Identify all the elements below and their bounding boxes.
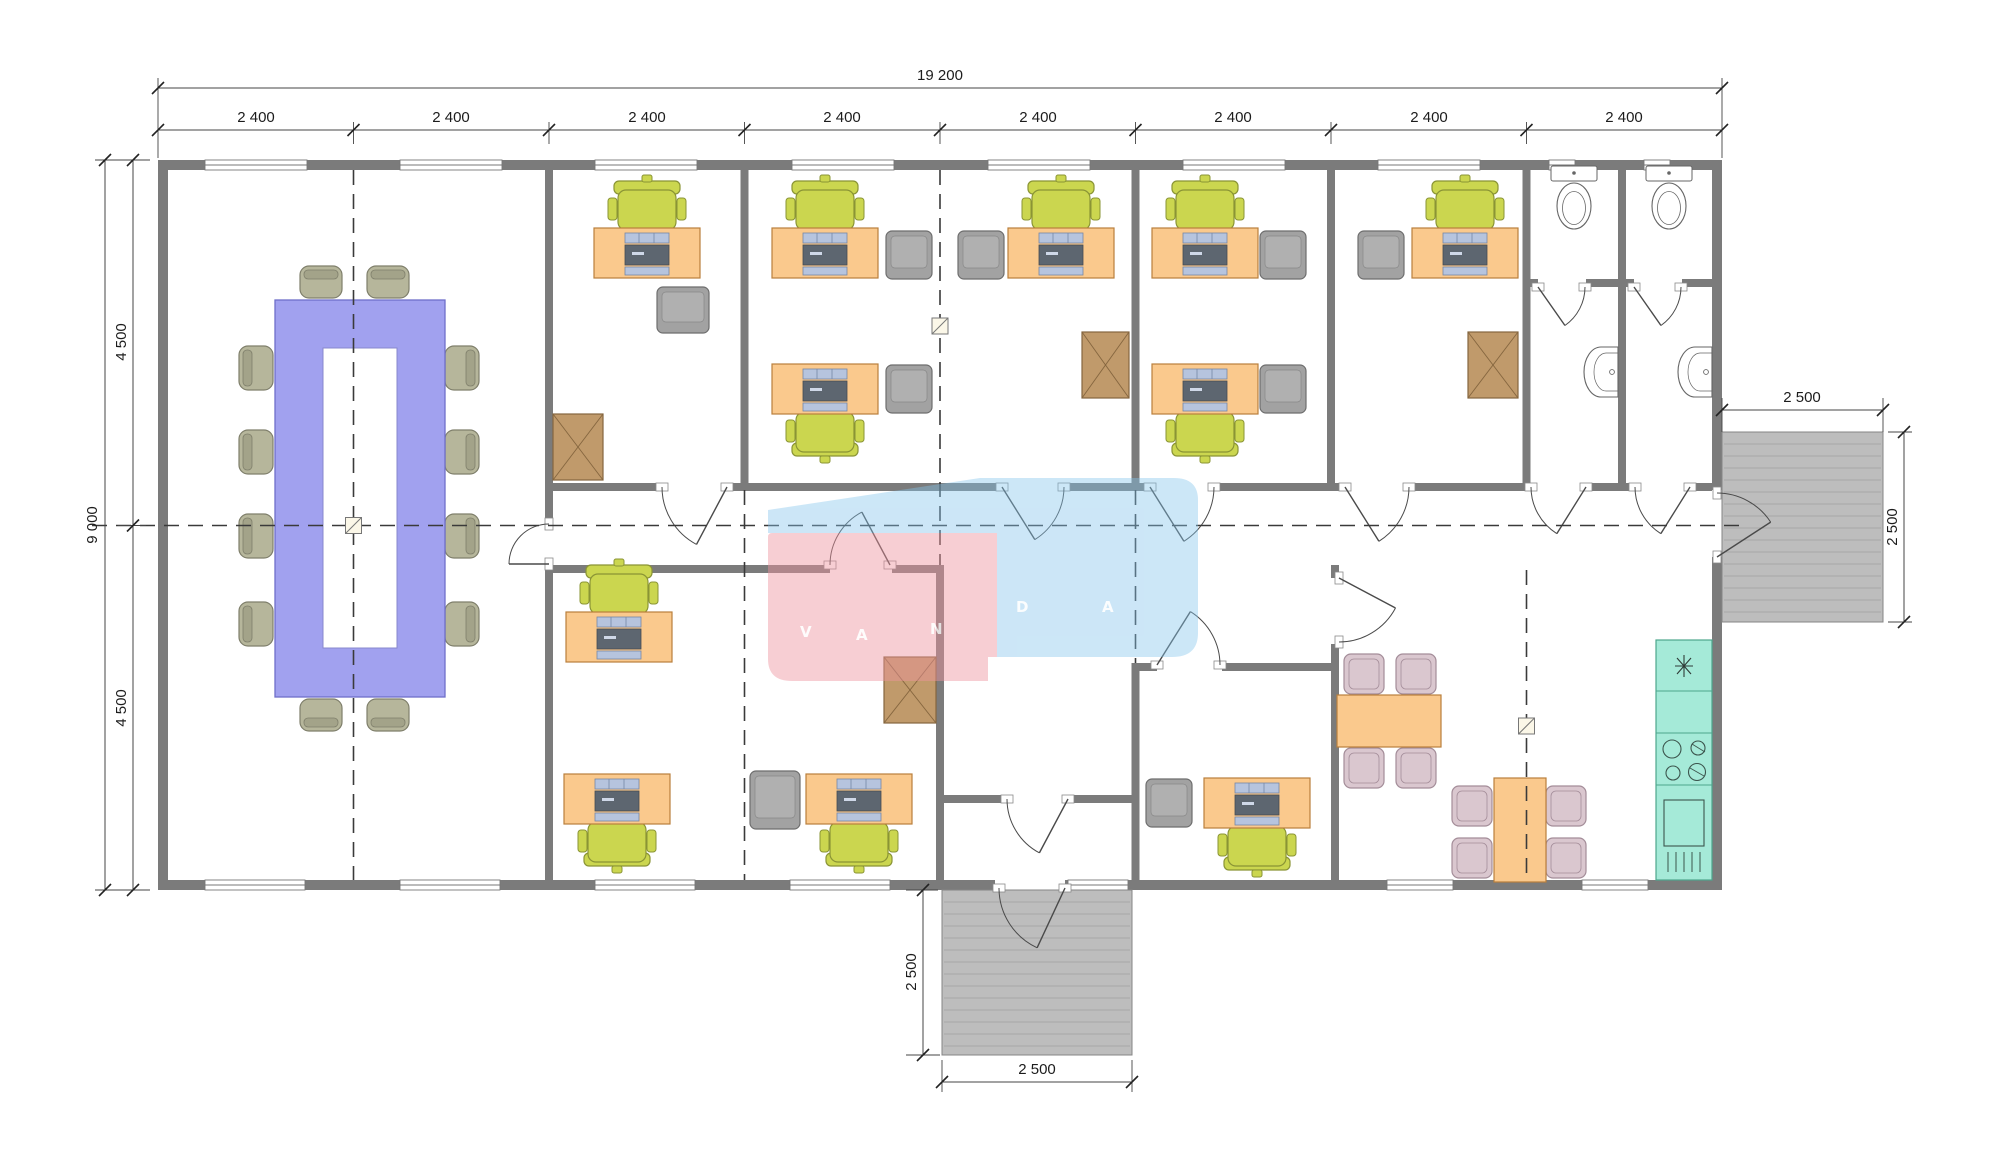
- task-chair-armrest: [1218, 834, 1227, 856]
- door-opening: [1712, 490, 1722, 557]
- conference-chair-back: [371, 718, 405, 727]
- guest-chair-seat: [963, 236, 999, 268]
- dim-left-upper: 4 500: [113, 323, 130, 361]
- computer-keyboard: [1183, 233, 1227, 243]
- wall-segment: [1132, 170, 1140, 483]
- guest-chair-seat: [891, 370, 927, 402]
- door: [1335, 572, 1396, 648]
- task-chair-headrest: [1460, 175, 1470, 182]
- door-swing-arc: [1661, 287, 1681, 326]
- door-leaf: [1538, 287, 1565, 326]
- wall-segment: [741, 170, 749, 483]
- conference-chair-back: [466, 434, 475, 470]
- task-chair-armrest: [580, 582, 589, 604]
- watermark-letter: V: [800, 623, 812, 641]
- dining-chair: [1396, 748, 1436, 788]
- computer-keyboard: [1443, 233, 1487, 243]
- computer-keyboard: [1039, 233, 1083, 243]
- conference-chair-back: [243, 606, 252, 642]
- dim-right-porch-depth: 2 500: [1884, 508, 1901, 546]
- wall-segment: [158, 160, 1722, 170]
- conference-chair-back: [371, 270, 405, 279]
- task-chair-armrest: [608, 198, 617, 220]
- computer-monitor-glare: [810, 252, 822, 255]
- computer-monitor-glare: [1190, 252, 1202, 255]
- task-chair: [1228, 826, 1286, 866]
- task-chair-headrest: [854, 866, 864, 873]
- door-leaf: [1345, 487, 1379, 541]
- task-chair-headrest: [1200, 175, 1210, 182]
- guest-chair: [750, 771, 800, 829]
- guest-chair: [1260, 365, 1306, 413]
- task-chair-armrest: [1235, 420, 1244, 442]
- wall-segment: [1132, 663, 1140, 880]
- computer-keyboard: [1235, 783, 1279, 793]
- wall-segment: [944, 795, 1005, 803]
- task-chair-headrest: [612, 866, 622, 873]
- watermark-letter: N: [930, 620, 943, 638]
- wall-segment: [549, 483, 660, 491]
- computer-monitor: [1039, 245, 1083, 265]
- computer-base: [1183, 267, 1227, 275]
- conference-chair-back: [243, 518, 252, 554]
- computer-monitor: [1235, 795, 1279, 815]
- dining-chair: [1396, 654, 1436, 694]
- computer-monitor-glare: [844, 798, 856, 801]
- dining-chair: [1546, 786, 1586, 826]
- task-chair-armrest: [677, 198, 686, 220]
- computer-keyboard: [625, 233, 669, 243]
- guest-chair: [886, 365, 932, 413]
- wall-segment: [158, 880, 1722, 890]
- dim-bay-6: 2 400: [1214, 109, 1252, 126]
- grid-intersection-marker: [346, 518, 362, 534]
- dining-chair: [1452, 786, 1492, 826]
- task-chair-headrest: [1252, 870, 1262, 877]
- computer-monitor: [803, 381, 847, 401]
- wall-segment: [1409, 483, 1530, 491]
- guest-chair: [1358, 231, 1404, 279]
- watermark-letter: A: [1102, 598, 1114, 616]
- task-chair-armrest: [1495, 198, 1504, 220]
- computer-keyboard: [597, 617, 641, 627]
- task-chair: [1176, 412, 1234, 452]
- dim-bay-1: 2 400: [237, 109, 275, 126]
- task-chair-headrest: [614, 559, 624, 566]
- dim-bay-8: 2 400: [1605, 109, 1643, 126]
- computer-base: [837, 813, 881, 821]
- computer-keyboard: [1183, 369, 1227, 379]
- computer-monitor: [1443, 245, 1487, 265]
- computer-base: [597, 651, 641, 659]
- task-chair: [1436, 190, 1494, 230]
- task-chair: [1176, 190, 1234, 230]
- computer-keyboard: [595, 779, 639, 789]
- computer-base: [803, 403, 847, 411]
- door-leaf: [1339, 578, 1396, 608]
- computer-monitor: [837, 791, 881, 811]
- door-swing-arc: [509, 524, 549, 564]
- door: [1001, 795, 1074, 853]
- wall-segment: [1327, 170, 1335, 483]
- task-chair-armrest: [1235, 198, 1244, 220]
- computer-monitor-glare: [1046, 252, 1058, 255]
- conference-chair-back: [466, 518, 475, 554]
- door-swing-arc: [1007, 799, 1039, 853]
- task-chair: [830, 822, 888, 862]
- task-chair-armrest: [1091, 198, 1100, 220]
- wall-segment: [1618, 170, 1626, 483]
- task-chair-headrest: [820, 456, 830, 463]
- office-desk: [566, 559, 672, 662]
- floor-plan-drawing: 19 200 2 400 2 400 2 400 2 400 2 400 2 4…: [0, 0, 2000, 1160]
- conference-chair-back: [466, 350, 475, 386]
- task-chair: [588, 822, 646, 862]
- computer-base: [595, 813, 639, 821]
- dim-bay-2: 2 400: [432, 109, 470, 126]
- task-chair-headrest: [1200, 456, 1210, 463]
- task-chair: [1032, 190, 1090, 230]
- watermark-pink-shape: [768, 533, 997, 681]
- dining-chair: [1344, 748, 1384, 788]
- deck: [942, 890, 1132, 1055]
- task-chair-armrest: [855, 198, 864, 220]
- conference-set: [239, 266, 479, 731]
- guest-chair: [1146, 779, 1192, 827]
- break-room-set: [1337, 654, 1586, 882]
- wall-segment: [1331, 644, 1339, 880]
- dining-chair: [1452, 838, 1492, 878]
- dining-table: [1337, 695, 1441, 747]
- toilet-flush-dot: [1572, 171, 1576, 175]
- office-desk: [1412, 175, 1518, 278]
- conference-chair-back: [304, 270, 338, 279]
- dim-bottom-porch-depth: 2 500: [903, 953, 920, 991]
- grid-intersection-marker: [1519, 718, 1535, 734]
- task-chair-armrest: [855, 420, 864, 442]
- wall-segment: [1222, 663, 1335, 671]
- conference-chair-back: [243, 434, 252, 470]
- door-swing-arc: [1339, 608, 1396, 642]
- door-leaf: [696, 487, 727, 544]
- computer-monitor-glare: [602, 798, 614, 801]
- office-desk: [564, 774, 670, 873]
- guest-chair-seat: [891, 236, 927, 268]
- door-leaf: [1039, 799, 1068, 853]
- task-chair-headrest: [642, 175, 652, 182]
- office-desk: [772, 364, 878, 463]
- storage-cabinet: [1082, 332, 1129, 398]
- dim-total-width: 19 200: [917, 67, 963, 84]
- dim-total-height: 9 000: [84, 506, 101, 544]
- door-swing-arc: [1531, 487, 1557, 534]
- watermark-letter: D: [1016, 598, 1028, 616]
- task-chair-armrest: [786, 198, 795, 220]
- guest-chair: [958, 231, 1004, 279]
- task-chair-armrest: [1166, 198, 1175, 220]
- conference-table-hole: [323, 348, 397, 648]
- wall-segment: [545, 170, 553, 528]
- task-chair: [590, 574, 648, 614]
- task-chair-armrest: [786, 420, 795, 442]
- door-leaf: [1557, 487, 1586, 534]
- door-opening: [995, 880, 1065, 890]
- door-swing-arc: [1635, 487, 1661, 534]
- guest-chair-seat: [1363, 236, 1399, 268]
- dim-left-lower: 4 500: [113, 689, 130, 727]
- task-chair: [796, 412, 854, 452]
- door-leaf: [1661, 487, 1690, 534]
- guest-chair-seat: [662, 292, 704, 322]
- computer-monitor: [595, 791, 639, 811]
- task-chair-armrest: [1426, 198, 1435, 220]
- wall-segment: [545, 566, 553, 880]
- office-desk: [1152, 364, 1258, 463]
- task-chair: [618, 190, 676, 230]
- computer-base: [1235, 817, 1279, 825]
- task-chair-headrest: [1056, 175, 1066, 182]
- dim-right-porch-width: 2 500: [1783, 389, 1821, 406]
- conference-chair-back: [304, 718, 338, 727]
- guest-chair-seat: [1265, 370, 1301, 402]
- task-chair-armrest: [1287, 834, 1296, 856]
- watermark-letter: A: [856, 626, 868, 644]
- wall-segment: [1216, 483, 1345, 491]
- conference-chair-back: [466, 606, 475, 642]
- computer-monitor: [803, 245, 847, 265]
- task-chair-armrest: [1022, 198, 1031, 220]
- computer-keyboard: [803, 233, 847, 243]
- dim-bay-4: 2 400: [823, 109, 861, 126]
- dim-bay-3: 2 400: [628, 109, 666, 126]
- computer-base: [1039, 267, 1083, 275]
- wall-segment: [1586, 483, 1634, 491]
- deck: [1722, 432, 1883, 622]
- computer-keyboard: [803, 369, 847, 379]
- dining-table: [1494, 778, 1546, 882]
- computer-monitor-glare: [604, 636, 616, 639]
- task-chair-armrest: [1166, 420, 1175, 442]
- toilet-bowl: [1557, 183, 1591, 229]
- door: [1628, 283, 1687, 326]
- computer-monitor: [625, 245, 669, 265]
- wall-segment: [1523, 170, 1531, 483]
- dining-chair: [1344, 654, 1384, 694]
- office-desk: [594, 175, 700, 278]
- office-desk: [1152, 175, 1258, 278]
- office-desk: [806, 774, 912, 873]
- guest-chair: [886, 231, 932, 279]
- floor-plan: 19 200 2 400 2 400 2 400 2 400 2 400 2 4…: [0, 0, 2000, 1160]
- conference-chair-back: [243, 350, 252, 386]
- dim-bottom-porch-width: 2 500: [1018, 1061, 1056, 1078]
- task-chair-armrest: [889, 830, 898, 852]
- office-desk: [1008, 175, 1114, 278]
- door-swing-arc: [1565, 287, 1585, 326]
- guest-chair-seat: [755, 776, 795, 818]
- door-swing-arc: [662, 487, 696, 544]
- door: [1532, 283, 1591, 326]
- task-chair-armrest: [649, 582, 658, 604]
- vanda-watermark: V A N D A: [768, 478, 1198, 681]
- door-leaf: [1634, 287, 1661, 326]
- computer-monitor-glare: [1450, 252, 1462, 255]
- dim-bay-7: 2 400: [1410, 109, 1448, 126]
- task-chair-armrest: [578, 830, 587, 852]
- toilet-flush-dot: [1667, 171, 1671, 175]
- storage-cabinet: [1468, 332, 1518, 398]
- computer-monitor: [597, 629, 641, 649]
- computer-base: [803, 267, 847, 275]
- computer-keyboard: [837, 779, 881, 789]
- guest-chair: [1260, 231, 1306, 279]
- task-chair-armrest: [647, 830, 656, 852]
- computer-base: [1183, 403, 1227, 411]
- office-desk: [1204, 778, 1310, 877]
- guest-chair-seat: [1265, 236, 1301, 268]
- wall-segment: [1068, 795, 1132, 803]
- dim-bay-5: 2 400: [1019, 109, 1057, 126]
- computer-base: [625, 267, 669, 275]
- computer-monitor-glare: [1242, 802, 1254, 805]
- task-chair-headrest: [820, 175, 830, 182]
- computer-monitor-glare: [632, 252, 644, 255]
- guest-chair-seat: [1151, 784, 1187, 816]
- kitchen-counter: [1656, 640, 1712, 880]
- door-swing-arc: [1379, 487, 1409, 541]
- task-chair: [796, 190, 854, 230]
- door: [1339, 483, 1415, 541]
- computer-base: [1443, 267, 1487, 275]
- door: [656, 483, 733, 544]
- toilet-bowl: [1652, 183, 1686, 229]
- storage-cabinet: [553, 414, 603, 480]
- grid-intersection-marker: [932, 318, 948, 334]
- computer-monitor: [1183, 245, 1227, 265]
- guest-chair: [657, 287, 709, 333]
- computer-monitor-glare: [810, 388, 822, 391]
- computer-monitor-glare: [1190, 388, 1202, 391]
- dining-chair: [1546, 838, 1586, 878]
- task-chair-armrest: [820, 830, 829, 852]
- office-desk: [772, 175, 878, 278]
- computer-monitor: [1183, 381, 1227, 401]
